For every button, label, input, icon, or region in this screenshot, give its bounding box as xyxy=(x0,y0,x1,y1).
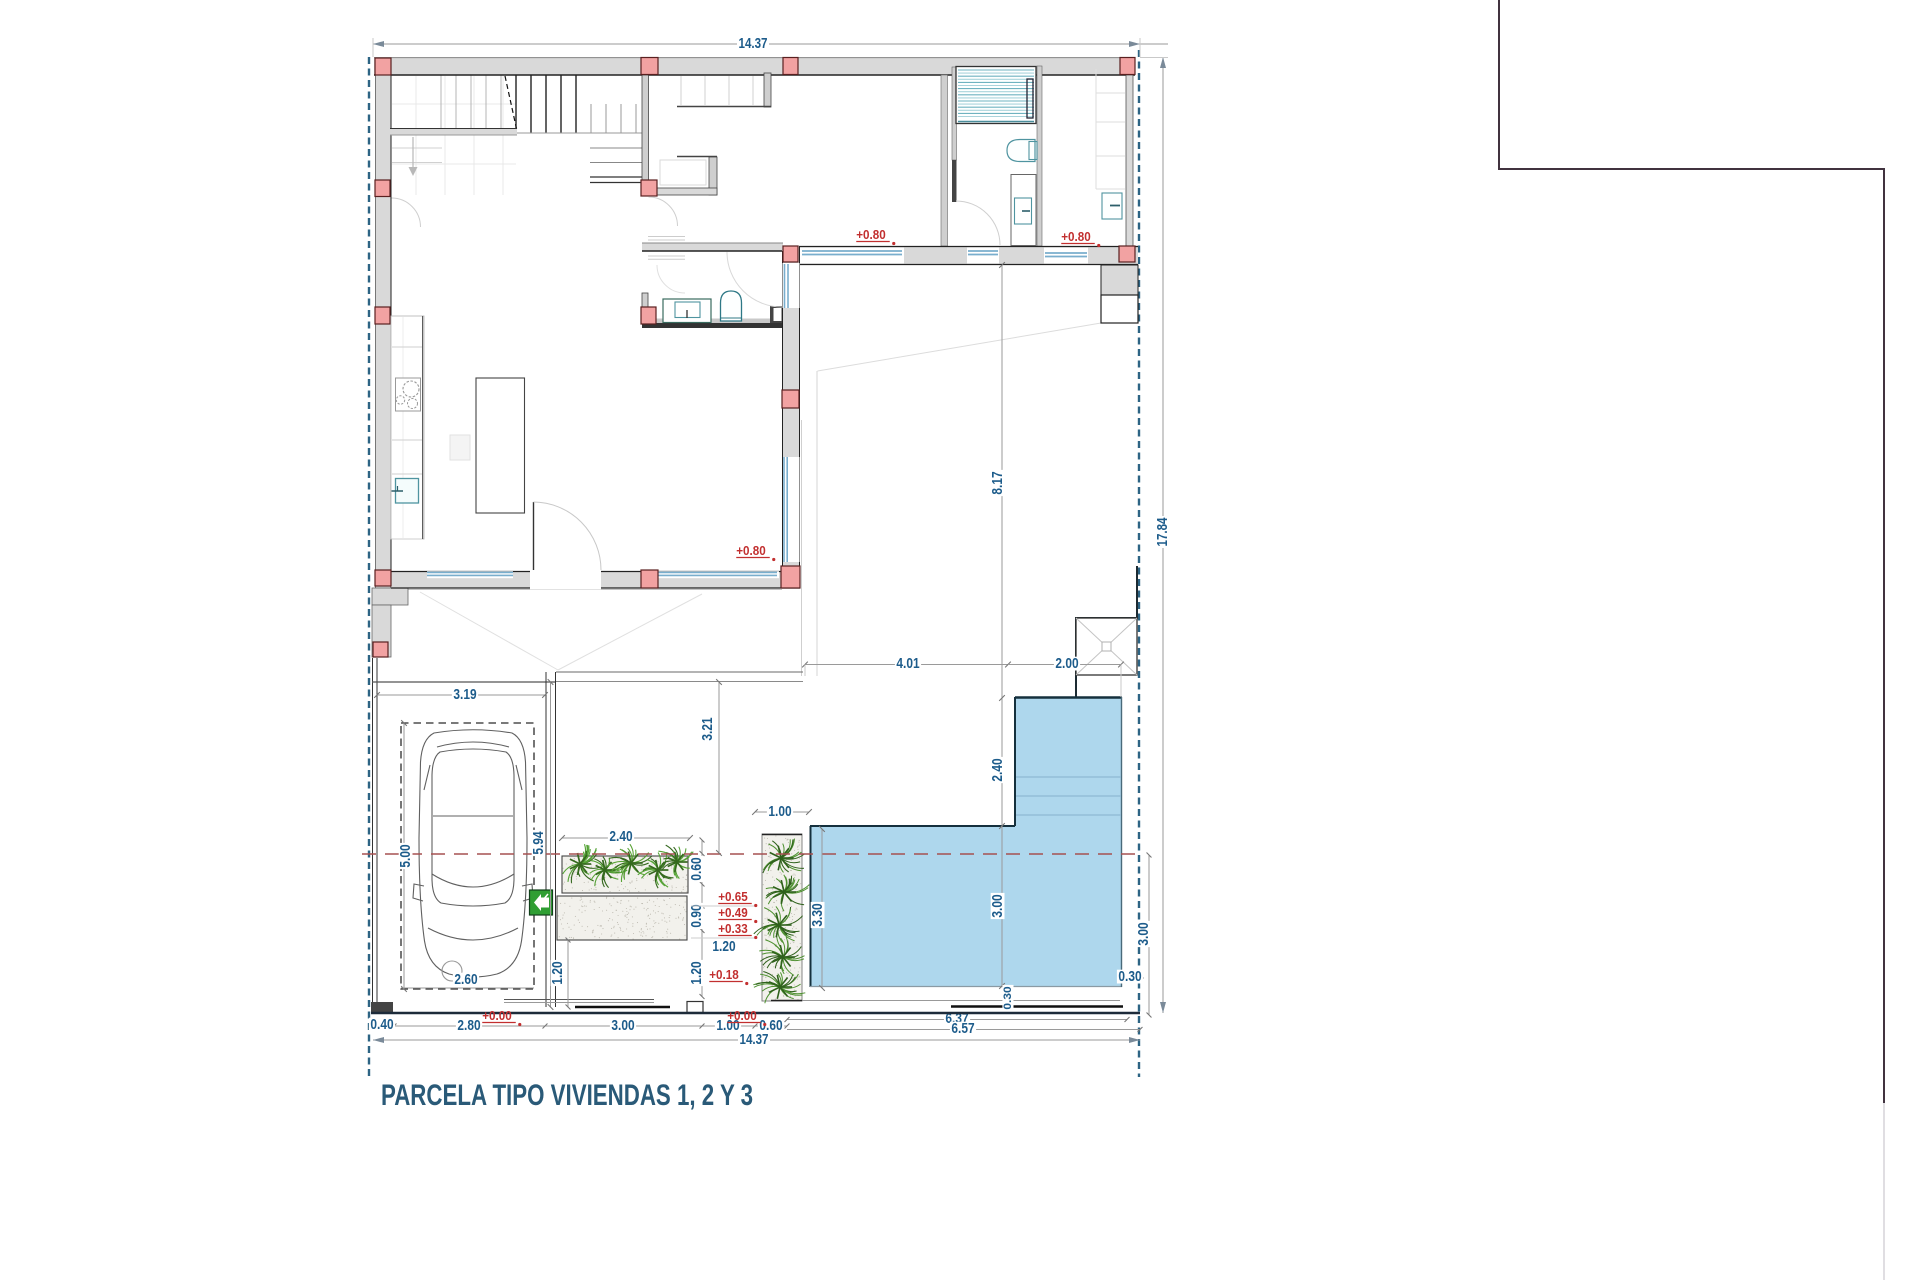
svg-text:+0.80: +0.80 xyxy=(736,543,766,558)
svg-text:2.40: 2.40 xyxy=(609,829,632,845)
svg-text:1.00: 1.00 xyxy=(768,804,791,820)
svg-text:2.60: 2.60 xyxy=(454,972,477,988)
svg-text:1.20: 1.20 xyxy=(550,961,566,984)
svg-text:3.00: 3.00 xyxy=(1136,922,1152,945)
svg-text:2.40: 2.40 xyxy=(990,758,1006,781)
svg-text:0.30: 0.30 xyxy=(1002,986,1014,1009)
svg-text:3.30: 3.30 xyxy=(810,903,826,926)
svg-text:14.37: 14.37 xyxy=(740,1032,769,1048)
svg-text:4.01: 4.01 xyxy=(896,656,919,672)
svg-text:+0.18: +0.18 xyxy=(709,967,739,982)
svg-text:5.00: 5.00 xyxy=(398,844,414,867)
svg-text:1.20: 1.20 xyxy=(712,939,735,955)
svg-text:3.00: 3.00 xyxy=(611,1018,634,1034)
svg-text:0.40: 0.40 xyxy=(370,1017,393,1033)
svg-text:3.21: 3.21 xyxy=(700,717,716,740)
svg-text:5.94: 5.94 xyxy=(531,831,547,854)
svg-text:3.19: 3.19 xyxy=(453,687,476,703)
svg-text:+0.00: +0.00 xyxy=(727,1008,757,1023)
svg-text:14.37: 14.37 xyxy=(739,36,768,52)
svg-text:2.00: 2.00 xyxy=(1055,656,1078,672)
svg-text:+0.00: +0.00 xyxy=(482,1008,512,1023)
svg-text:+0.80: +0.80 xyxy=(1061,229,1091,244)
svg-text:+0.80: +0.80 xyxy=(856,227,886,242)
svg-text:3.00: 3.00 xyxy=(990,894,1006,917)
svg-text:0.90: 0.90 xyxy=(689,904,705,927)
svg-text:17.84: 17.84 xyxy=(1155,518,1171,547)
svg-text:6.57: 6.57 xyxy=(951,1021,974,1037)
svg-text:0.30: 0.30 xyxy=(1118,969,1141,985)
svg-text:+0.33: +0.33 xyxy=(718,921,748,936)
svg-text:0.60: 0.60 xyxy=(689,857,705,880)
svg-text:2.80: 2.80 xyxy=(457,1018,480,1034)
svg-text:+0.65: +0.65 xyxy=(718,889,748,904)
svg-text:8.17: 8.17 xyxy=(990,471,1006,494)
svg-text:PARCELA TIPO VIVIENDAS 1, 2 Y: PARCELA TIPO VIVIENDAS 1, 2 Y 3 xyxy=(381,1079,753,1112)
svg-text:+0.49: +0.49 xyxy=(718,905,748,920)
svg-text:1.20: 1.20 xyxy=(689,961,705,984)
